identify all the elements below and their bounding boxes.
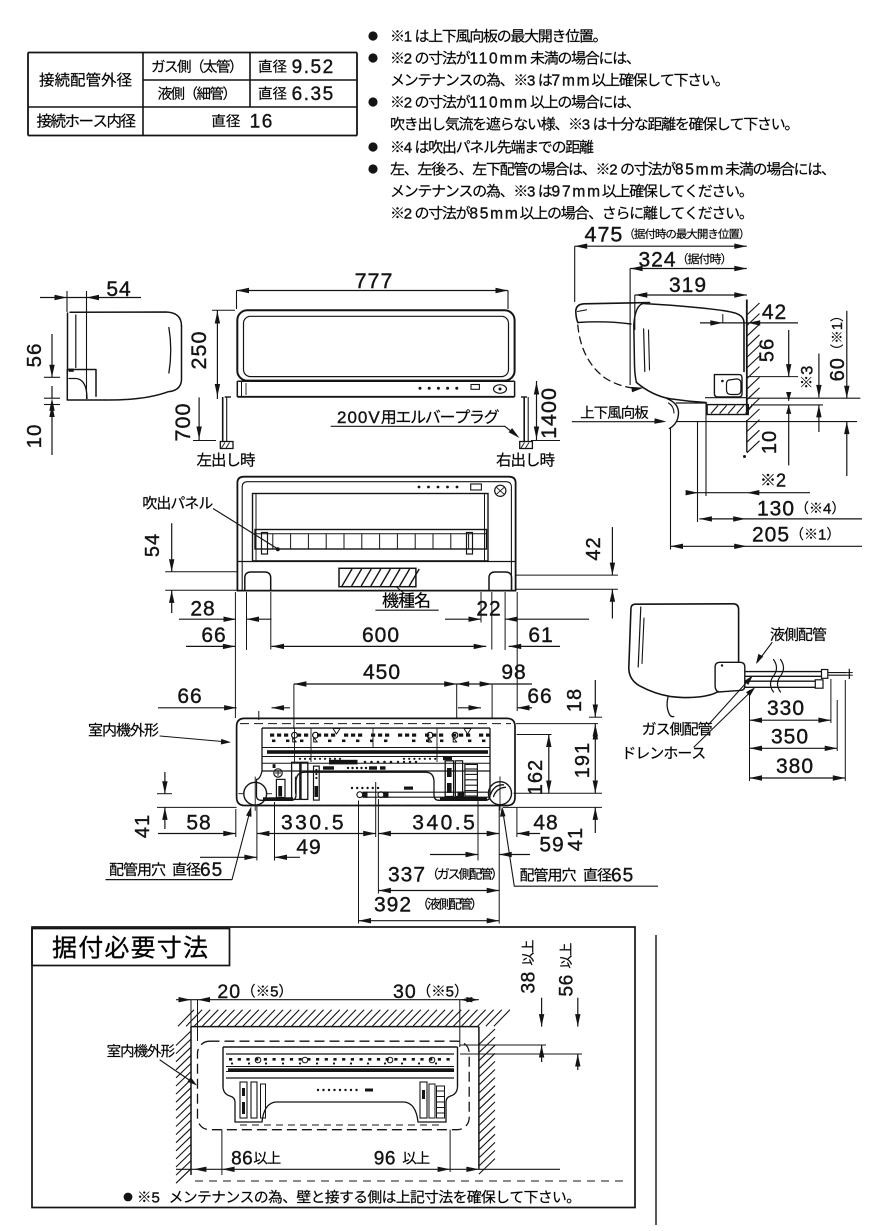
svg-text:85mm: 85mm [469, 205, 519, 222]
svg-text:380: 380 [776, 755, 814, 778]
svg-text:330.5: 330.5 [281, 812, 346, 835]
svg-text:777: 777 [355, 269, 394, 293]
svg-text:4: 4 [404, 139, 415, 156]
svg-text:450: 450 [363, 661, 401, 684]
svg-text:10: 10 [759, 430, 781, 454]
svg-text:85mm: 85mm [675, 161, 725, 178]
svg-text:18: 18 [564, 688, 586, 712]
svg-text:66: 66 [177, 685, 202, 708]
svg-text:66: 66 [201, 624, 226, 647]
svg-text:66: 66 [527, 685, 552, 708]
svg-text:110mm: 110mm [469, 94, 529, 111]
svg-text:2: 2 [404, 205, 415, 222]
svg-text:475: 475 [585, 223, 624, 247]
svg-text:49: 49 [296, 836, 321, 859]
svg-text:191: 191 [572, 742, 594, 778]
svg-text:1400: 1400 [537, 387, 561, 439]
svg-text:28: 28 [190, 598, 215, 621]
svg-text:350: 350 [771, 726, 809, 749]
svg-text:1: 1 [818, 526, 826, 543]
svg-text:2: 2 [404, 94, 415, 111]
svg-text:56: 56 [757, 338, 779, 362]
svg-text:86: 86 [231, 1149, 253, 1170]
svg-text:200V: 200V [337, 408, 381, 427]
svg-text:16: 16 [240, 112, 273, 133]
svg-text:1: 1 [404, 28, 415, 45]
svg-text:1: 1 [830, 322, 846, 330]
svg-text:340.5: 340.5 [412, 812, 477, 835]
svg-text:5: 5 [152, 1189, 162, 1206]
svg-text:30: 30 [393, 981, 417, 1003]
svg-text:59: 59 [539, 834, 564, 857]
svg-text:61: 61 [528, 624, 553, 647]
svg-text:250: 250 [187, 331, 211, 370]
svg-text:205: 205 [752, 523, 790, 546]
svg-text:98: 98 [501, 661, 526, 684]
svg-text:48: 48 [533, 812, 558, 835]
svg-text:54: 54 [142, 533, 164, 557]
svg-text:10: 10 [23, 424, 46, 449]
svg-text:3: 3 [527, 183, 538, 200]
svg-text:3: 3 [582, 116, 593, 133]
svg-text:41: 41 [132, 814, 154, 838]
svg-text:2: 2 [404, 50, 415, 67]
svg-text:700: 700 [171, 403, 195, 442]
svg-text:130: 130 [757, 497, 795, 520]
svg-text:54: 54 [106, 278, 131, 301]
svg-text:97mm: 97mm [552, 183, 602, 200]
svg-text:38: 38 [519, 971, 540, 993]
svg-text:58: 58 [186, 812, 211, 835]
svg-text:41: 41 [565, 827, 587, 851]
svg-text:20: 20 [217, 981, 241, 1003]
svg-text:60: 60 [827, 357, 849, 381]
svg-text:2: 2 [609, 161, 620, 178]
svg-text:337: 337 [388, 863, 426, 886]
svg-text:96: 96 [374, 1149, 396, 1170]
svg-text:4: 4 [823, 500, 831, 517]
svg-text:110mm: 110mm [469, 50, 529, 67]
svg-text:7mm: 7mm [552, 72, 592, 89]
svg-text:42: 42 [583, 536, 605, 560]
svg-text:600: 600 [362, 624, 400, 647]
svg-text:2: 2 [776, 470, 786, 490]
svg-text:319: 319 [669, 274, 707, 297]
svg-text:3: 3 [527, 72, 538, 89]
svg-text:392: 392 [374, 893, 412, 916]
svg-text:22: 22 [476, 598, 501, 621]
svg-text:5: 5 [446, 983, 454, 1000]
svg-text:65: 65 [200, 860, 223, 881]
svg-text:42: 42 [762, 301, 787, 324]
svg-text:65: 65 [611, 866, 634, 887]
svg-text:3: 3 [798, 366, 816, 375]
svg-text:6.35: 6.35 [287, 84, 335, 105]
svg-text:56: 56 [557, 974, 578, 996]
svg-text:5: 5 [270, 983, 278, 1000]
svg-text:162: 162 [525, 759, 547, 795]
svg-text:330: 330 [767, 697, 805, 720]
svg-text:56: 56 [23, 343, 46, 368]
svg-text:9.52: 9.52 [287, 57, 335, 78]
